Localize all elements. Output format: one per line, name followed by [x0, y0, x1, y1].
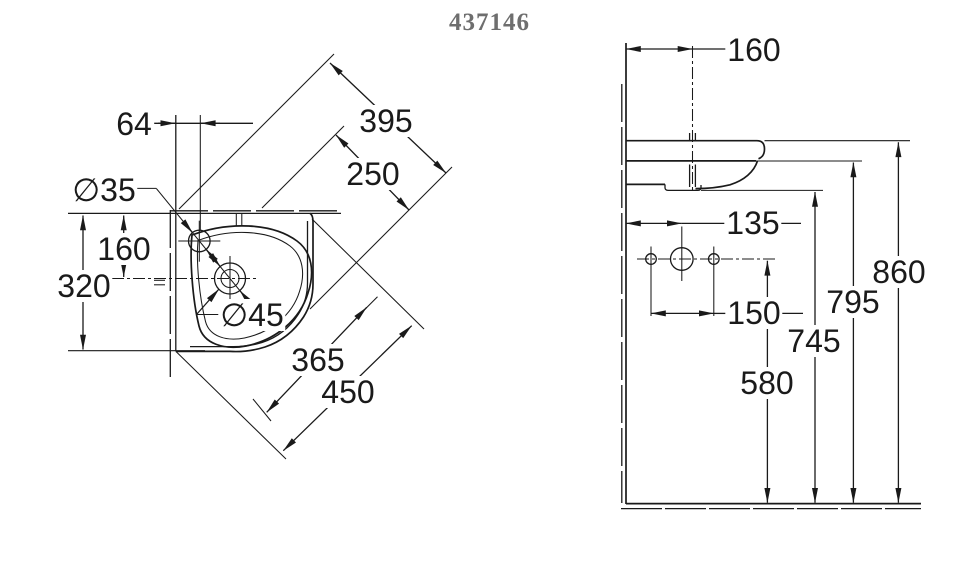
dim-label-fixing-spacing: 150 [725, 297, 782, 329]
dim-395-250-lines [179, 54, 452, 309]
dim-label-drain-diameter: ∅45 [218, 299, 285, 331]
floor-line [621, 504, 921, 509]
dim-label-rim-height: 860 [870, 256, 927, 288]
dim-365-450-lines [176, 219, 424, 459]
dim-label-tap-offset: 64 [114, 108, 154, 140]
dim-label-tap-diameter: ∅35 [70, 174, 137, 206]
dim-label-drain-from-wall: 160 [95, 233, 152, 265]
dim-label-overall-diagonal: 450 [319, 376, 376, 408]
dim-label-bowl-diagonal: 365 [289, 344, 346, 376]
side-wall-line [622, 43, 626, 504]
dim-label-drain-diagonal: 250 [344, 158, 401, 190]
dim-label-rim-diagonal: 395 [357, 105, 414, 137]
dim-label-fixing-from-wall: 135 [724, 207, 781, 239]
dim-label-apron-height: 795 [824, 286, 881, 318]
dim-label-side-depth: 320 [55, 270, 112, 302]
dim-label-underside-height: 745 [785, 325, 842, 357]
dim-label-fixing-height: 580 [738, 367, 795, 399]
technical-drawing-canvas: 437146 64 395 250 ∅35 160 320 ∅45 365 45… [0, 0, 979, 568]
model-number-title: 437146 [0, 10, 979, 35]
dim-label-tap-from-wall: 160 [725, 34, 782, 66]
